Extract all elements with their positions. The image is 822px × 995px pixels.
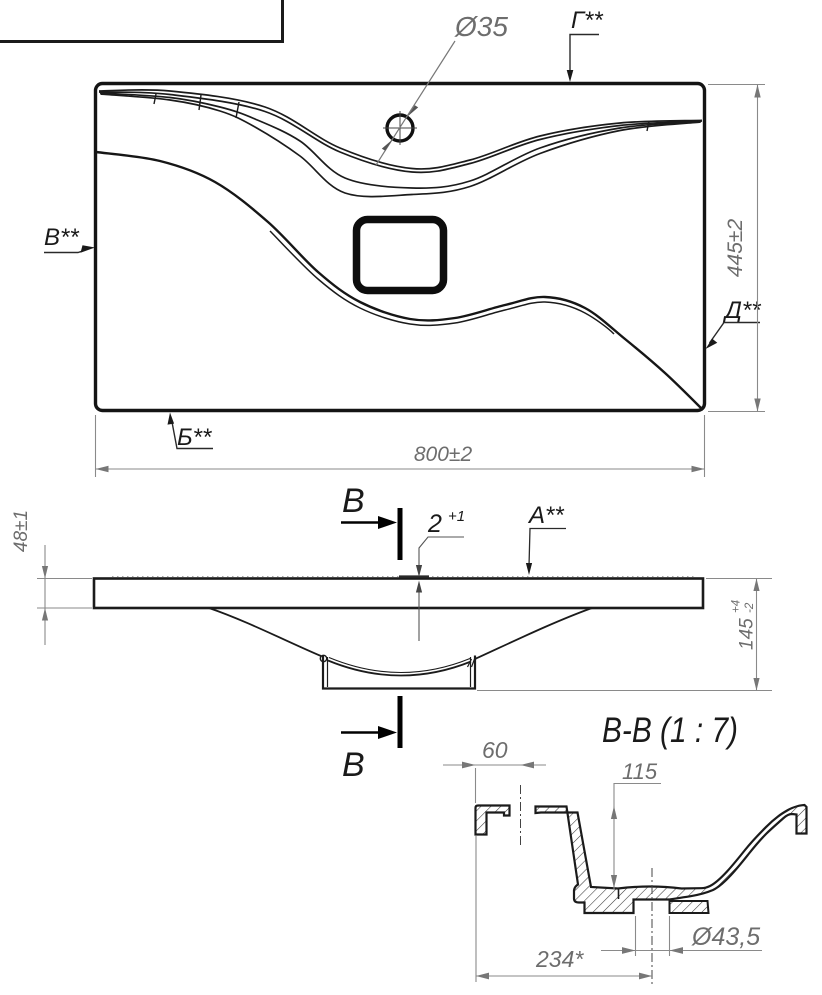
svg-text:-2: -2 — [744, 602, 756, 613]
svg-text:60: 60 — [482, 737, 508, 763]
svg-text:Ø35: Ø35 — [454, 11, 508, 42]
svg-text:234*: 234* — [535, 946, 584, 972]
svg-text:Б**: Б** — [177, 424, 212, 451]
svg-text:Ø43,5: Ø43,5 — [691, 923, 760, 951]
svg-text:800±2: 800±2 — [414, 443, 473, 466]
svg-text:В: В — [342, 746, 365, 784]
svg-text:+4: +4 — [731, 600, 743, 613]
svg-text:48±1: 48±1 — [11, 510, 32, 552]
svg-text:2: 2 — [427, 510, 442, 538]
svg-text:445±2: 445±2 — [724, 219, 747, 278]
svg-text:В: В — [342, 482, 365, 520]
svg-text:145: 145 — [737, 618, 758, 650]
svg-text:В**: В** — [44, 224, 79, 251]
svg-text:Д**: Д** — [722, 297, 761, 324]
svg-text:115: 115 — [622, 759, 658, 784]
svg-text:Г**: Г** — [571, 7, 603, 34]
svg-text:А**: А** — [527, 502, 564, 529]
svg-text:+1: +1 — [448, 508, 465, 525]
svg-text:В-В (1 : 7): В-В (1 : 7) — [602, 711, 738, 750]
